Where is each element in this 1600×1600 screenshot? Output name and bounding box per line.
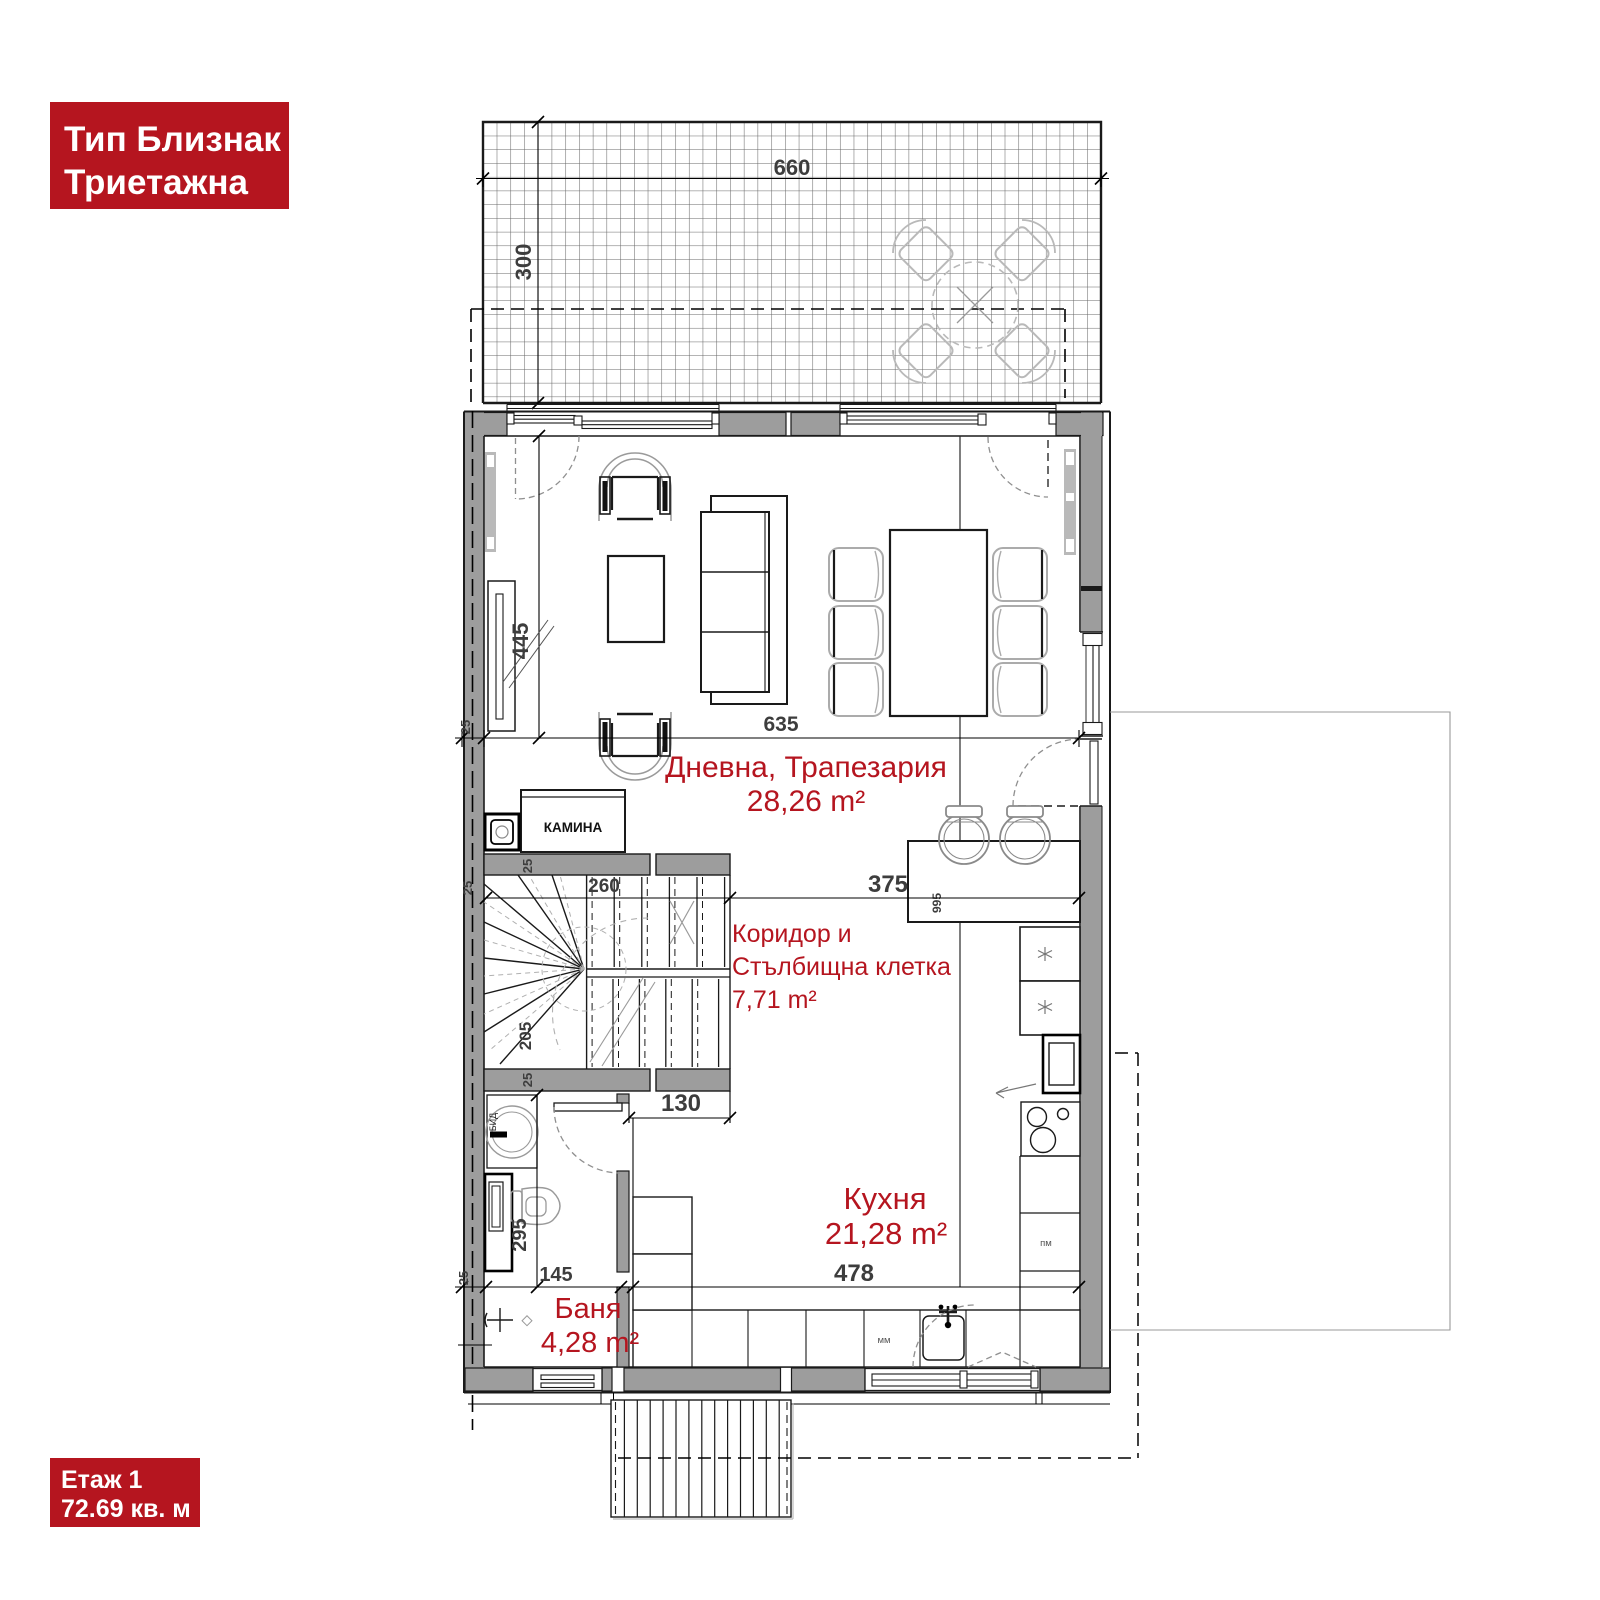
svg-text:мм: мм [877,1335,890,1346]
svg-text:Триетажна: Триетажна [64,163,249,202]
svg-text:25: 25 [458,720,473,734]
svg-text:25: 25 [520,859,535,873]
svg-text:130: 130 [661,1090,701,1117]
svg-text:375: 375 [868,871,908,898]
svg-text:21,28 m²: 21,28 m² [825,1216,947,1251]
svg-text:25: 25 [520,1073,535,1087]
svg-text:660: 660 [774,155,811,180]
svg-text:4,28 m²: 4,28 m² [541,1327,640,1359]
svg-text:295: 295 [509,1218,531,1251]
svg-text:Коридор и: Коридор и [732,920,852,948]
svg-text:7,71 m²: 7,71 m² [732,986,817,1014]
svg-text:Стълбищна клетка: Стълбищна клетка [732,953,951,981]
svg-text:БИД: БИД [488,1113,498,1131]
svg-text:28,26 m²: 28,26 m² [747,785,865,818]
svg-text:КАМИНА: КАМИНА [544,820,603,835]
svg-text:72.69 кв. м: 72.69 кв. м [61,1495,191,1523]
svg-text:205: 205 [516,1022,535,1050]
svg-text:635: 635 [763,713,798,736]
svg-text:Етаж 1: Етаж 1 [61,1466,142,1494]
svg-text:Тип Близнак: Тип Близнак [64,120,281,159]
svg-text:Дневна, Трапезария: Дневна, Трапезария [665,751,947,784]
svg-text:260: 260 [588,876,620,897]
svg-text:478: 478 [834,1260,874,1287]
svg-text:25: 25 [456,1271,471,1285]
svg-text:25: 25 [460,881,475,895]
svg-text:145: 145 [539,1264,572,1286]
svg-text:300: 300 [511,244,536,281]
svg-text:Баня: Баня [555,1293,622,1325]
svg-text:Кухня: Кухня [844,1181,927,1216]
svg-text:445: 445 [508,623,533,660]
svg-text:995: 995 [930,893,944,913]
svg-text:пм: пм [1040,1238,1052,1249]
